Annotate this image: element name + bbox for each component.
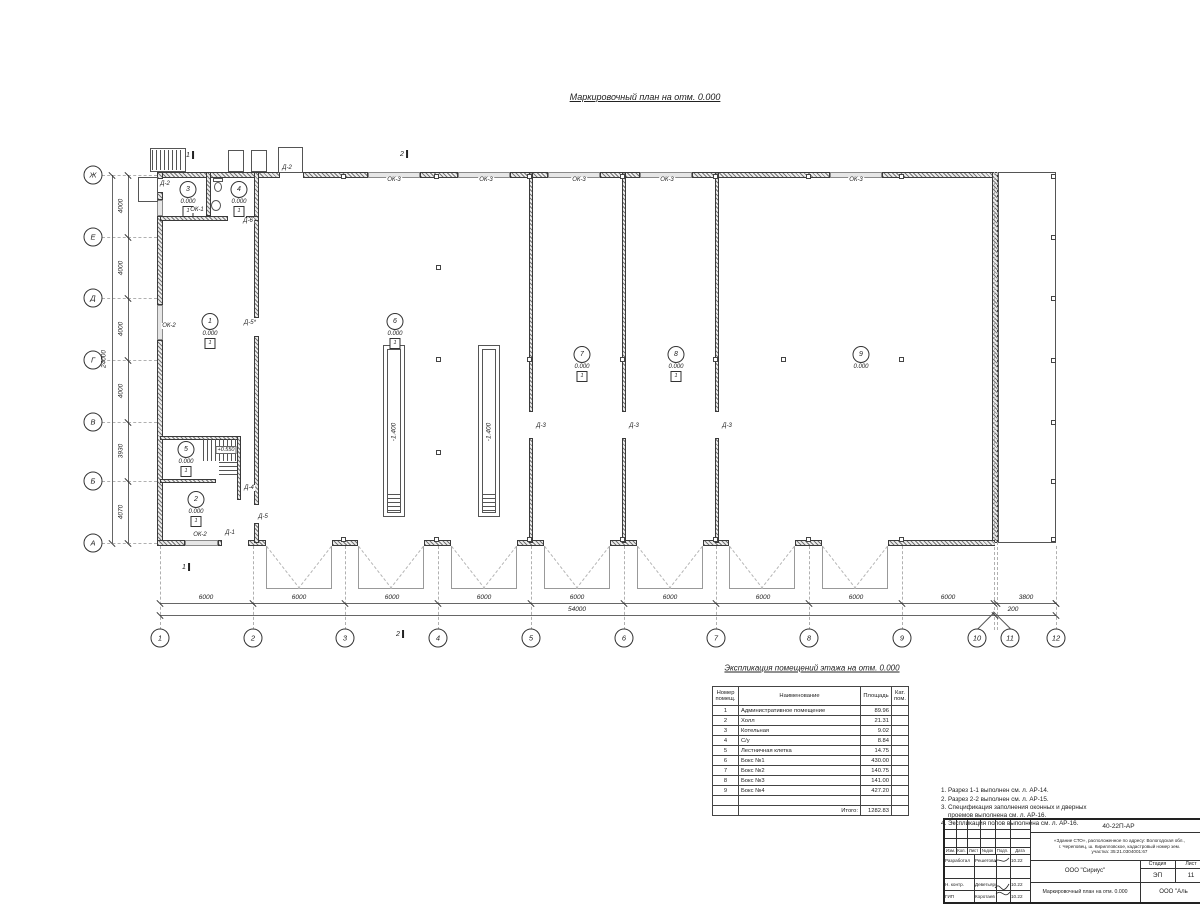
total-value: 1282.83 (861, 806, 892, 816)
gate-apron (266, 546, 332, 589)
axis-bubble-row: Е (84, 228, 103, 247)
tb-role: Разработал (945, 855, 975, 866)
cell-number: 8 (713, 776, 739, 786)
dim-line (160, 615, 1056, 616)
note-line: 1. Разрез 1-1 выполнен см. л. АР-14. (941, 787, 1087, 795)
tb-sheet-value: 11 (1175, 868, 1200, 882)
tb-role (945, 867, 975, 878)
cell-name: Бокс №1 (739, 756, 861, 766)
dim-text-vertical: 4000 (118, 384, 125, 398)
col-header-area: Площадь (861, 687, 892, 706)
dim-text: 6000 (941, 594, 955, 601)
column-square (1051, 358, 1056, 363)
room-number: 1 (201, 313, 218, 330)
table-row: 2 Холл 21.31 (713, 716, 909, 726)
wall-segment (622, 438, 626, 543)
room-number: 5 (177, 441, 194, 458)
tb-project-description: «Здание СТО», расположенное по адресу: В… (1032, 833, 1200, 860)
tb-organization-2: ООО "Аль (1140, 882, 1200, 902)
tb-col-podp: Подп. (995, 847, 1010, 854)
dim-text-vertical: 4000 (118, 199, 125, 213)
window-segment (157, 200, 163, 216)
dim-text-vertical: 4000 (118, 261, 125, 275)
column-square (899, 357, 904, 362)
pit-elevation-label: -1.400 (486, 423, 493, 441)
section-arrow (402, 630, 404, 638)
floor-type-box: 1 (190, 516, 201, 527)
cell-number: 7 (713, 766, 739, 776)
dim-text: 6000 (385, 594, 399, 601)
tb-role: Н. контр. (945, 879, 975, 890)
wall-segment (254, 523, 259, 543)
wall-segment (160, 479, 216, 483)
dim-text: 6000 (199, 594, 213, 601)
cell-area: 141.00 (861, 776, 892, 786)
floor-type-box: 1 (670, 371, 681, 382)
grid-line-vertical (902, 546, 903, 630)
tb-col-doc: №док (980, 847, 995, 854)
opening-label: Д-5 (257, 514, 269, 520)
section-mark: 1 (186, 151, 194, 159)
opening-label: Д-3 (535, 423, 547, 429)
wall-segment (157, 340, 163, 543)
grid-line-vertical (997, 172, 998, 630)
table-row: 9 Бокс №4 427.20 (713, 786, 909, 796)
outline-rect (251, 150, 267, 172)
opening-label: ОК-2 (192, 532, 208, 538)
col-header-name: Наименование (739, 687, 861, 706)
dim-text: 6000 (292, 594, 306, 601)
tb-project-line3: участка: 35:21.0304001:67 (1092, 849, 1148, 855)
note-line: 3. Спецификация заполнения оконных и две… (941, 804, 1087, 812)
room-elevation: 0.000 (386, 331, 403, 337)
outline-rect (998, 172, 1056, 543)
column-square (1051, 420, 1056, 425)
axis-bubble-col: 9 (893, 629, 912, 648)
section-number: 1 (182, 564, 186, 571)
table-row: 3 Котельная 9.02 (713, 726, 909, 736)
axis-bubble-row: В (84, 413, 103, 432)
wall-segment (529, 438, 533, 543)
dim-text: 3800 (1019, 594, 1033, 601)
column-square (1051, 296, 1056, 301)
section-arrow (406, 150, 408, 158)
sink-icon (211, 200, 221, 211)
axis-bubble-row: А (84, 534, 103, 553)
signature-scribble (993, 854, 1011, 902)
cell-name: Холл (739, 716, 861, 726)
column-square (436, 450, 441, 455)
wall-segment (254, 336, 259, 505)
axis-bubble-col: 4 (429, 629, 448, 648)
stair-treads (482, 494, 496, 513)
wall-segment (254, 172, 259, 318)
window-segment (185, 540, 218, 546)
room-number: 3 (179, 181, 196, 198)
opening-label: Д-2 (281, 165, 293, 171)
cell-cat (892, 736, 909, 746)
wall-segment (157, 216, 163, 305)
cell-area: 89.96 (861, 706, 892, 716)
column-square (620, 537, 625, 542)
grid-line-vertical (253, 546, 254, 630)
floor-type-box: 1 (389, 338, 400, 349)
axis-bubble-col: 8 (800, 629, 819, 648)
dim-text: 200 (1008, 606, 1019, 613)
table-total-row: Итого: 1282.83 (713, 806, 909, 816)
grid-line-vertical (994, 172, 995, 630)
column-square (527, 537, 532, 542)
col-header-cat: Кат. пом. (892, 687, 909, 706)
gate-apron (451, 546, 517, 589)
opening-label: ОК-1 (189, 207, 205, 213)
leader-line (993, 611, 1011, 629)
column-square (1051, 174, 1056, 179)
drawing-sheet: { "title": "Маркировочный план на отм. 0… (0, 0, 1200, 900)
room-elevation: 0.000 (852, 364, 869, 370)
column-square (434, 174, 439, 179)
toilet-icon (214, 182, 222, 192)
column-square (1051, 479, 1056, 484)
grid-line-vertical (345, 546, 346, 630)
cell-area: 427.20 (861, 786, 892, 796)
axis-bubble-row: Д (84, 289, 103, 308)
cell-number: 3 (713, 726, 739, 736)
wall-segment (237, 436, 241, 500)
wall-segment (303, 172, 368, 178)
wall-segment (420, 172, 458, 178)
room-elevation: 0.000 (201, 331, 218, 337)
table-row: 6 Бокс №1 430.00 (713, 756, 909, 766)
grid-line-vertical (624, 546, 625, 630)
cell-cat (892, 706, 909, 716)
cell-number: 6 (713, 756, 739, 766)
room-elevation: 0.000 (187, 509, 204, 515)
room-elevation: 0.000 (573, 364, 590, 370)
floor-type-box: 1 (576, 371, 587, 382)
floor-type-box: 1 (204, 338, 215, 349)
tb-signature-row: Разработал Решетова 10.22 (945, 854, 1030, 866)
room-elevation: 0.000 (177, 459, 194, 465)
cell-name: С/у (739, 736, 861, 746)
col-header-number: Номер помещ. (713, 687, 739, 706)
tb-date: 10.22 (1011, 879, 1030, 890)
room-number: 9 (852, 346, 869, 363)
tb-signature-row: ГИП Коротаев 10.22 (945, 890, 1030, 902)
dim-text: 6000 (756, 594, 770, 601)
dim-text-vertical: 24000 (101, 350, 108, 368)
column-square (341, 174, 346, 179)
section-mark: 1 (182, 563, 190, 571)
room-number: 2 (187, 491, 204, 508)
note-line: 2. Разрез 2-2 выполнен см. л. АР-15. (941, 796, 1087, 804)
wall-segment (888, 540, 995, 546)
gate-apron (358, 546, 424, 589)
outline-rect (138, 177, 158, 202)
opening-label: ОК-3 (571, 177, 587, 183)
axis-bubble-col: 2 (244, 629, 263, 648)
tb-doc-number: 40-22П-АР (1030, 820, 1200, 832)
wall-segment (157, 540, 185, 546)
total-label: Итого: (739, 806, 861, 816)
tb-col-list: Лист (967, 847, 980, 854)
opening-label: Д-1 (224, 530, 236, 536)
cell-name: Бокс №2 (739, 766, 861, 776)
room-number: 8 (667, 346, 684, 363)
gate-apron (637, 546, 703, 589)
cell-name: Котельная (739, 726, 861, 736)
table-row: 5 Лестничная клетка 14.75 (713, 746, 909, 756)
section-mark: 2 (400, 150, 408, 158)
room-explication-table: Номер помещ. Наименование Площадь Кат. п… (712, 686, 909, 816)
stair-treads (219, 462, 237, 477)
room-number: 6 (386, 313, 403, 330)
column-square (806, 174, 811, 179)
dim-text: 54000 (568, 606, 586, 613)
dim-text-vertical: 4070 (118, 505, 125, 519)
cell-area: 140.75 (861, 766, 892, 776)
room-marker: 1 0.000 1 (201, 313, 218, 349)
cell-area: 14.75 (861, 746, 892, 756)
column-square (1051, 235, 1056, 240)
column-square (806, 537, 811, 542)
cell-name: Бокс №3 (739, 776, 861, 786)
pit-elevation-label: -1.400 (391, 423, 398, 441)
column-square (713, 357, 718, 362)
axis-bubble-col: 1 (151, 629, 170, 648)
wall-segment (622, 172, 626, 412)
tb-role: ГИП (945, 891, 975, 902)
section-number: 1 (186, 152, 190, 159)
column-square (713, 174, 718, 179)
opening-label: Д-2 (159, 181, 171, 187)
cell-cat (892, 786, 909, 796)
stair-landing-label: +0.550 (216, 446, 237, 454)
title-block: Изм. Кол. Лист №док Подп. Дата Разработа… (943, 818, 1200, 904)
cell-number: 9 (713, 786, 739, 796)
opening-label: Д-3 (721, 423, 733, 429)
opening-label: ОК-3 (478, 177, 494, 183)
column-square (436, 265, 441, 270)
wall-segment (715, 172, 719, 412)
tb-col-data: Дата (1010, 847, 1030, 854)
dim-line (112, 175, 113, 543)
opening-label: Д-5* (243, 320, 257, 326)
opening-label: ОК-3 (386, 177, 402, 183)
gate-apron (822, 546, 888, 589)
floor-type-box: 1 (180, 466, 191, 477)
table-header-row: Номер помещ. Наименование Площадь Кат. п… (713, 687, 909, 706)
column-square (620, 174, 625, 179)
cell-number: 1 (713, 706, 739, 716)
section-arrow (188, 563, 190, 571)
tb-signature-row (945, 866, 1030, 878)
page-title: Маркировочный план на отм. 0.000 (570, 92, 721, 102)
axis-bubble-row: Б (84, 472, 103, 491)
axis-bubble-col: 10 (968, 629, 987, 648)
floor-type-box: 1 (233, 206, 244, 217)
axis-bubble-col: 7 (707, 629, 726, 648)
cell-number: 2 (713, 716, 739, 726)
grid-line-vertical (438, 546, 439, 630)
room-marker: 6 0.000 1 (386, 313, 403, 349)
grid-line-vertical (716, 546, 717, 630)
room-number: 7 (573, 346, 590, 363)
dim-text: 6000 (849, 594, 863, 601)
tb-stage-label: Стадия (1140, 860, 1175, 868)
cell-number: 5 (713, 746, 739, 756)
room-elevation: 0.000 (179, 199, 196, 205)
room-elevation: 0.000 (667, 364, 684, 370)
opening-label: ОК-3 (848, 177, 864, 183)
tb-drawing-title: Маркировочный план на отм. 0.000 (1030, 882, 1140, 902)
dim-text-vertical: 4000 (118, 322, 125, 336)
section-number: 2 (400, 151, 404, 158)
tb-col-kol: Кол. (956, 847, 967, 854)
opening-label: Д-3 (628, 423, 640, 429)
grid-line-vertical (809, 546, 810, 630)
column-square (713, 537, 718, 542)
outline-rect (228, 150, 244, 172)
opening-label: ОК-2 (161, 323, 177, 329)
column-square (899, 537, 904, 542)
room-elevation: 0.000 (230, 199, 247, 205)
cell-area: 8.84 (861, 736, 892, 746)
column-square (434, 537, 439, 542)
cell-area: 430.00 (861, 756, 892, 766)
column-square (781, 357, 786, 362)
tb-signature-row: Н. контр. Деветьярова 10.22 (945, 878, 1030, 890)
column-square (620, 357, 625, 362)
wall-segment (715, 438, 719, 543)
stair-treads (152, 150, 184, 170)
column-square (527, 174, 532, 179)
cell-cat (892, 756, 909, 766)
column-square (436, 357, 441, 362)
cell-cat (892, 746, 909, 756)
dim-text: 6000 (663, 594, 677, 601)
tb-date: 10.22 (1011, 891, 1030, 902)
axis-bubble-col: 5 (522, 629, 541, 648)
column-square (899, 174, 904, 179)
wall-segment (529, 172, 533, 412)
tb-date (1011, 867, 1030, 878)
axis-bubble-col: 11 (1001, 629, 1020, 648)
axis-bubble-col: 12 (1047, 629, 1066, 648)
column-square (341, 537, 346, 542)
tb-stage-value: ЭП (1140, 868, 1175, 882)
opening-label: Д-6 (242, 218, 254, 224)
tb-sheet-label: Лист (1175, 860, 1200, 868)
cell-name: Бокс №4 (739, 786, 861, 796)
axis-bubble-row: Ж (84, 166, 103, 185)
room-marker: 8 0.000 1 (667, 346, 684, 382)
tb-organization: ООО "Сириус" (1030, 860, 1140, 882)
cell-number: 4 (713, 736, 739, 746)
cell-name: Административное помещение (739, 706, 861, 716)
cell-cat (892, 776, 909, 786)
gate-apron (544, 546, 610, 589)
cell-area: 9.02 (861, 726, 892, 736)
cell-name: Лестничная клетка (739, 746, 861, 756)
dim-text: 6000 (477, 594, 491, 601)
section-number: 2 (396, 631, 400, 638)
wall-segment (206, 172, 211, 216)
stair-treads (387, 494, 401, 513)
axis-bubble-col: 3 (336, 629, 355, 648)
cell-cat (892, 716, 909, 726)
cell-cat (892, 726, 909, 736)
table-row: 4 С/у 8.84 (713, 736, 909, 746)
dim-line (160, 603, 1056, 604)
column-square (527, 357, 532, 362)
table-row: 8 Бокс №3 141.00 (713, 776, 909, 786)
gate-apron (729, 546, 795, 589)
grid-line-vertical (531, 546, 532, 630)
wall-segment (218, 540, 222, 546)
room-number: 4 (230, 181, 247, 198)
dim-text: 6000 (570, 594, 584, 601)
room-marker: 7 0.000 1 (573, 346, 590, 382)
tb-date: 10.22 (1011, 855, 1030, 866)
room-marker: 2 0.000 1 (187, 491, 204, 527)
opening-label: ОК-3 (659, 177, 675, 183)
opening-label: Д-4 (243, 485, 255, 491)
room-marker: 4 0.000 1 (230, 181, 247, 217)
tb-col-izm: Изм. (945, 847, 956, 854)
room-marker: 9 0.000 (852, 346, 869, 370)
table-row: 7 Бокс №2 140.75 (713, 766, 909, 776)
table-row: 1 Административное помещение 89.96 (713, 706, 909, 716)
column-square (1051, 537, 1056, 542)
section-mark: 2 (396, 630, 404, 638)
section-arrow (192, 151, 194, 159)
dim-text-vertical: 3930 (118, 444, 125, 458)
table-empty-row (713, 796, 909, 806)
axis-bubble-col: 6 (615, 629, 634, 648)
cell-cat (892, 766, 909, 776)
table-title: Экспликация помещений этажа на отм. 0.00… (724, 664, 899, 673)
room-marker: 5 0.000 1 (177, 441, 194, 477)
cell-area: 21.31 (861, 716, 892, 726)
